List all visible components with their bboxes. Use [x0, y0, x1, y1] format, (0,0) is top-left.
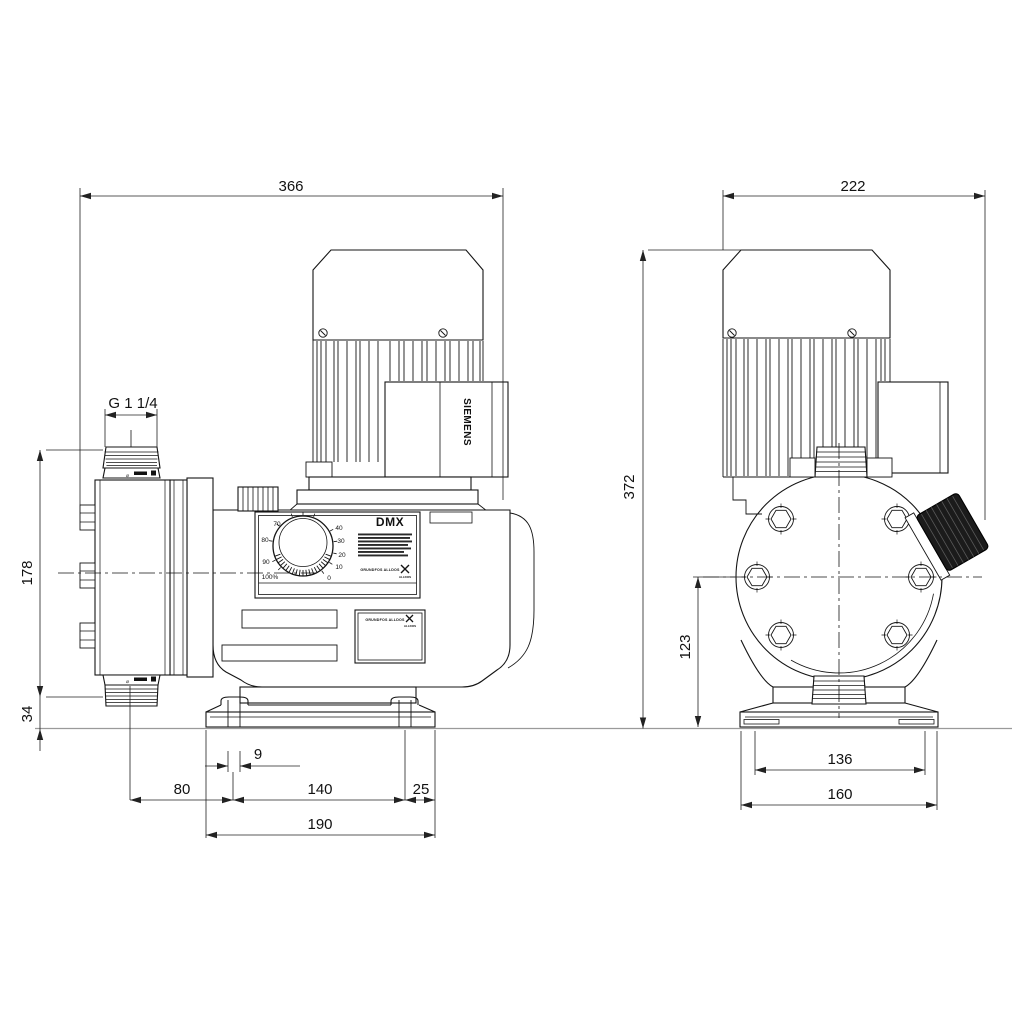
dial-label: 20 [338, 552, 346, 559]
dim-text: 123 [677, 634, 694, 659]
hex-bolt-icon [80, 623, 95, 648]
dial-label: 30 [337, 538, 345, 545]
dial-label: 100% [262, 574, 279, 581]
dim-text: G 1 1/4 [108, 395, 157, 412]
motor-brand-label: SIEMENS [461, 398, 472, 446]
head-body [95, 480, 170, 675]
dim-text: 34 [19, 706, 36, 723]
motor-fan-cover-side [313, 250, 483, 340]
hex-bolt-icon [80, 563, 95, 588]
nameplate: GRUNDFOS ALLDOS ALLDOS [355, 610, 425, 663]
dosing-head-side: ⌀ ⌀ [80, 447, 213, 706]
dim-text: 372 [621, 474, 638, 499]
control-panel: 100% 90 80 70 40 30 20 10 0 DMX [255, 512, 420, 599]
pump-dimensional-drawing: SIEMENS 100% 90 80 70 40 [0, 0, 1024, 1024]
dim-text: 222 [840, 178, 865, 195]
pedestal [240, 687, 416, 703]
stroke-adjustment-knob-side [238, 487, 278, 511]
head-back-flange [187, 478, 213, 677]
dial-label: 40 [335, 525, 343, 532]
brand-wordmark: GRUNDFOS ALLDOS [360, 568, 400, 572]
dim-text: 140 [307, 781, 332, 798]
bottom-thread-connection [105, 685, 158, 706]
dial-label: 80 [261, 537, 269, 544]
top-thread-connection [103, 447, 160, 468]
drawing-page: SIEMENS 100% 90 80 70 40 [0, 0, 1024, 1024]
diameter-symbol: ⌀ [126, 679, 129, 685]
dim-text: 190 [307, 816, 332, 833]
dial-knob[interactable] [273, 516, 333, 577]
brand-sub-wordmark: ALLDOS [399, 575, 411, 579]
brand-sub-wordmark: ALLDOS [404, 624, 416, 628]
diameter-symbol: ⌀ [126, 473, 129, 479]
hex-bolt-icon [80, 505, 95, 530]
motor-neck-thread [815, 447, 867, 477]
motor-foot-right [867, 458, 892, 477]
motor-flange-lower [297, 490, 478, 504]
motor-fan-cover-front [723, 250, 890, 338]
dim-text: 160 [827, 786, 852, 803]
motor-flange-upper [309, 477, 471, 490]
dim-text: 80 [174, 781, 191, 798]
dial-label: 0 [327, 575, 331, 582]
motor-terminal-box-side [385, 382, 508, 477]
motor-foot-left [790, 458, 815, 477]
dim-text: 9 [254, 746, 262, 763]
dim-text: 136 [827, 751, 852, 768]
head-hex-bolts [80, 505, 95, 648]
model-label: DMX [376, 515, 404, 529]
dim-text: 366 [278, 178, 303, 195]
dial-label: 90 [262, 559, 270, 566]
brand-wordmark: GRUNDFOS ALLDOS [365, 618, 405, 622]
dim-text: 178 [19, 560, 36, 585]
dial-label: 10 [335, 564, 343, 571]
dim-text: 25 [413, 781, 430, 798]
head-flange-ring [170, 480, 187, 675]
